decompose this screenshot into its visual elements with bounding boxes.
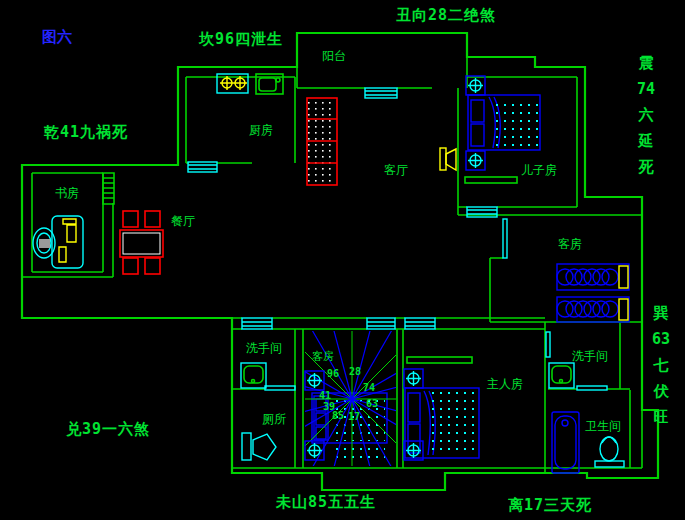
room-label-guest-right: 客房 xyxy=(558,237,582,251)
doors xyxy=(265,219,607,390)
room-label-bathroom: 卫生间 xyxy=(585,419,621,433)
room-label-living: 客厅 xyxy=(384,163,408,177)
bed-master xyxy=(405,388,479,458)
ceiling-light-icon xyxy=(466,151,485,170)
fengshui-label-chou: 丑向28二绝煞 xyxy=(396,7,496,24)
study-desk xyxy=(33,216,83,268)
window-balcony xyxy=(365,88,397,98)
dining-chair xyxy=(145,258,160,274)
study-computer xyxy=(59,219,76,262)
compass-number-85: 85 xyxy=(332,411,344,421)
tv xyxy=(440,148,456,170)
dining-chair xyxy=(123,258,138,274)
fengshui-label-li: 离17三天死 xyxy=(508,497,592,514)
dining-table xyxy=(120,230,163,257)
pillow xyxy=(619,299,628,320)
window-washroom-left xyxy=(242,318,272,329)
fengshui-label-qian: 乾41九祸死 xyxy=(44,124,128,141)
compass-number-17: 17 xyxy=(348,412,360,422)
room-label-washroom-right: 洗手间 xyxy=(572,349,608,363)
ceiling-light-icon xyxy=(466,76,485,95)
windows xyxy=(188,88,497,329)
room-label-dining: 餐厅 xyxy=(171,214,195,228)
twin-beds-guest-right xyxy=(557,264,629,322)
room-label-toilet: 厕所 xyxy=(262,412,286,426)
dining-chair xyxy=(123,211,138,227)
cad-floorplan-viewport: 图六 坎96四泄生 丑向28二绝煞 乾41九祸死 兑39一六煞 震 74 六 延… xyxy=(0,0,685,520)
sofa xyxy=(307,98,337,185)
floorplan-drawing xyxy=(0,0,685,520)
window-master xyxy=(405,318,435,329)
window-guest-center xyxy=(367,318,395,329)
door-washroom-right xyxy=(546,332,550,357)
room-label-study: 书房 xyxy=(55,186,79,200)
ceiling-light-icon xyxy=(404,369,423,388)
fengshui-label-zhen: 震 74 六 延 死 xyxy=(633,50,659,180)
sink-washroom-right xyxy=(549,363,574,388)
compass-number-28: 28 xyxy=(349,367,361,377)
figure-title: 图六 xyxy=(42,30,72,44)
room-label-master: 主人房 xyxy=(487,377,523,391)
compass-number-41: 41 xyxy=(319,391,331,401)
fengshui-label-xun: 巽 63 七 伏 旺 xyxy=(648,300,674,430)
compass-number-63: 63 xyxy=(366,399,378,409)
door-bathroom xyxy=(577,386,607,390)
pillow xyxy=(619,266,628,288)
room-label-kitchen: 厨房 xyxy=(249,123,273,137)
fengshui-label-wei: 未山85五五生 xyxy=(276,494,376,511)
sink-washroom-left xyxy=(241,363,266,388)
bed-son-room xyxy=(468,95,540,150)
toilet-left xyxy=(242,433,276,460)
toilet-bathroom xyxy=(595,437,624,467)
room-label-balcony: 阳台 xyxy=(322,49,346,63)
door-guest-right xyxy=(503,219,507,258)
fengshui-label-dui: 兑39一六煞 xyxy=(66,421,150,438)
study-mouse xyxy=(39,239,50,248)
dining-set xyxy=(120,211,163,274)
room-label-guest-center: 客房 xyxy=(312,350,334,364)
door-toilet xyxy=(265,386,295,390)
compass-number-96: 96 xyxy=(327,369,339,379)
window-kitchen xyxy=(188,162,217,172)
room-label-son-room: 儿子房 xyxy=(521,163,557,177)
bathtub xyxy=(552,412,579,473)
dining-chair xyxy=(145,211,160,227)
room-label-washroom-left: 洗手间 xyxy=(246,341,282,355)
fengshui-label-kan: 坎96四泄生 xyxy=(199,31,283,48)
compass-number-74: 74 xyxy=(363,383,375,393)
